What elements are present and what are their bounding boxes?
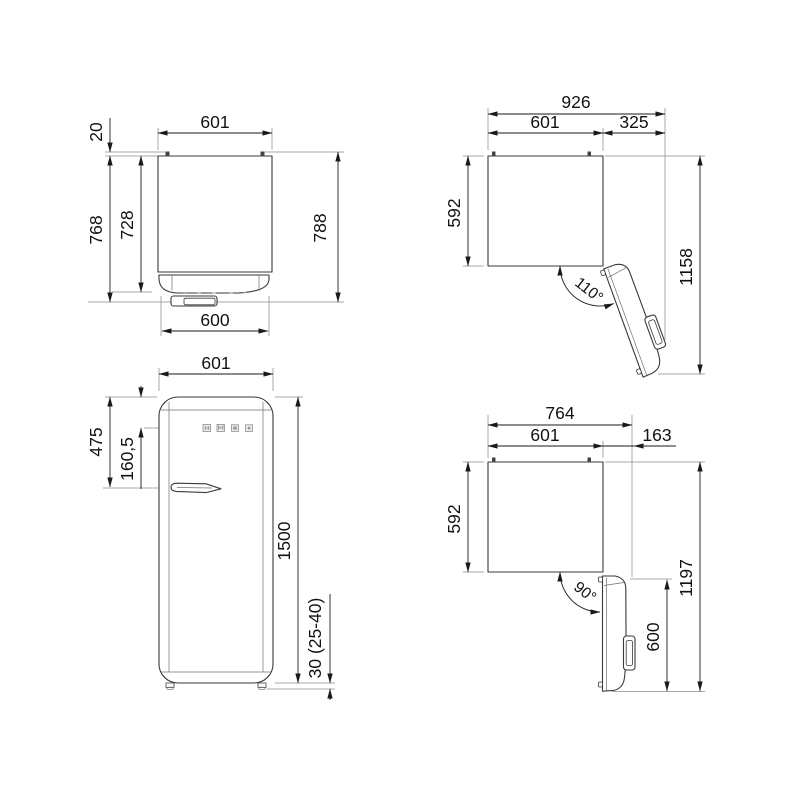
angle-label-90: 90° bbox=[570, 579, 599, 607]
dim-door-width-open: 600 bbox=[643, 622, 663, 651]
dim-width-top: 601 bbox=[200, 112, 229, 132]
view-plan-closed: 601 20 768 728 788 600 bbox=[86, 112, 344, 336]
dim-cabinet-width: 601 bbox=[530, 425, 559, 445]
dim-depth-with-door: 768 bbox=[86, 215, 106, 244]
dim-overall-depth: 1197 bbox=[676, 559, 696, 597]
cabinet-top-outline bbox=[488, 156, 603, 266]
cabinet-top-outline bbox=[158, 156, 272, 272]
dim-handle-from-top: 475 bbox=[86, 427, 106, 456]
dim-door-width: 600 bbox=[200, 310, 229, 330]
door-open-110 bbox=[600, 258, 674, 379]
dim-cabinet-depth: 592 bbox=[444, 504, 464, 533]
hinge-pin bbox=[492, 152, 496, 157]
view-front: 601 475 160,5 1500 30 (25-40) bbox=[86, 353, 335, 700]
dim-door-protrusion: 163 bbox=[642, 425, 671, 445]
dim-overall-depth: 1158 bbox=[676, 248, 696, 286]
cabinet-top-outline bbox=[488, 462, 603, 572]
fridge-front-outline bbox=[159, 397, 273, 683]
dim-overall-width: 764 bbox=[545, 403, 574, 423]
view-plan-open-90: 90° 764 601 163 592 1197 600 bbox=[444, 403, 705, 692]
dim-overall-width: 926 bbox=[561, 92, 590, 112]
dim-hinge-protrusion: 20 bbox=[86, 122, 106, 142]
dimension-drawing-page: 601 20 768 728 788 600 110° 926 601 bbox=[0, 0, 800, 800]
dim-height: 1500 bbox=[274, 521, 294, 560]
door-open-90 bbox=[599, 576, 636, 691]
dim-depth-overall: 788 bbox=[310, 213, 330, 242]
dim-cabinet-depth: 592 bbox=[444, 198, 464, 227]
hinge-pin bbox=[261, 152, 265, 157]
dim-feet-height: 30 (25-40) bbox=[305, 598, 325, 679]
angle-label-110: 110° bbox=[571, 274, 606, 306]
dimension-drawing: 601 20 768 728 788 600 110° 926 601 bbox=[0, 0, 800, 800]
dim-door-protrusion: 325 bbox=[619, 112, 648, 132]
dim-depth-no-door: 728 bbox=[117, 210, 137, 239]
door-closed-outline bbox=[159, 275, 269, 293]
dim-controls-from-top: 160,5 bbox=[117, 437, 137, 481]
hinge-pin bbox=[492, 458, 496, 463]
hinge-pin bbox=[166, 152, 170, 157]
hinge-pin bbox=[588, 152, 592, 157]
hinge-pin bbox=[588, 458, 592, 463]
dim-cabinet-width: 601 bbox=[530, 112, 559, 132]
dim-front-width: 601 bbox=[201, 353, 230, 373]
view-plan-open-110: 110° 926 601 325 592 1158 bbox=[444, 92, 705, 379]
feet bbox=[166, 683, 266, 690]
